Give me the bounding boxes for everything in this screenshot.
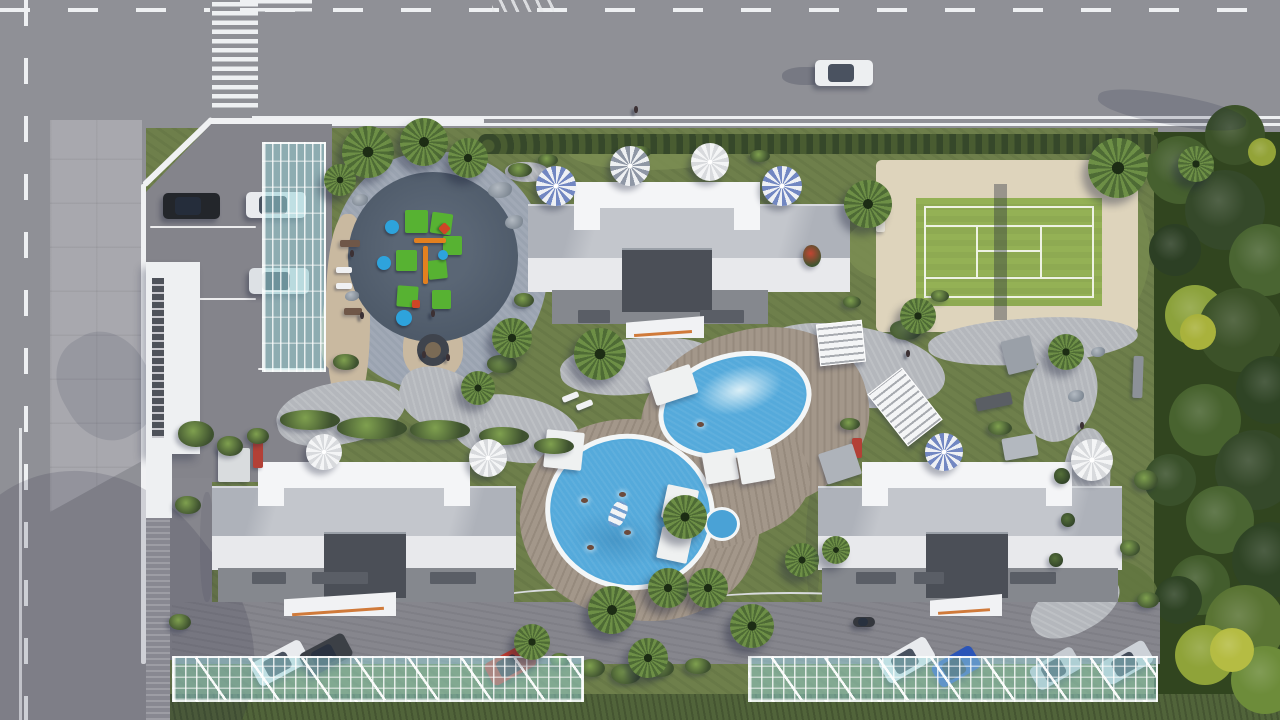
tree-canopy: [1149, 224, 1201, 276]
swimmer: [619, 492, 626, 497]
palm-tree: [574, 328, 626, 380]
sun-cabana-pad: [701, 448, 739, 484]
building-a-parapet-wing: [574, 182, 600, 230]
building-a-entrance-canopy: [578, 310, 610, 323]
playground-equipment: [405, 210, 428, 233]
person: [422, 351, 426, 358]
shrub: [169, 614, 191, 630]
shrub: [514, 293, 534, 307]
building-b-entrance-canopy: [312, 572, 368, 584]
shrub: [685, 658, 711, 674]
building-a-parapet-wing: [734, 182, 760, 230]
tennis-singles-line: [924, 277, 1094, 279]
palm-tree: [1178, 146, 1214, 182]
person: [360, 312, 364, 319]
palm-tree: [900, 298, 936, 334]
tennis-net-shadow: [994, 184, 1007, 320]
swimmer: [581, 498, 588, 503]
shrub: [1120, 540, 1140, 556]
slatted-pergola: [816, 320, 866, 367]
playground-equipment: [427, 259, 448, 280]
sun-cabana-pad: [737, 448, 776, 484]
sun-lounger: [336, 283, 352, 289]
sun-lounger: [336, 267, 352, 273]
shrub: [410, 420, 470, 440]
patio-umbrella: [762, 166, 802, 206]
building-c-entrance-canopy: [856, 572, 896, 584]
tree-canopy: [1180, 314, 1216, 350]
patio-umbrella: [536, 166, 576, 206]
palm-tree: [492, 318, 532, 358]
road-dash-line-top-east: [265, 8, 1280, 12]
playground-equipment: [396, 310, 412, 326]
building-b-entrance-canopy: [252, 572, 286, 584]
swimmer: [697, 422, 704, 427]
palm-tree: [785, 543, 819, 577]
sidewalk: [50, 120, 142, 512]
street-parking-canopy-east: [748, 656, 1158, 702]
playground-equipment: [396, 250, 417, 271]
car: [853, 617, 875, 627]
building-c-entrance-canopy: [1010, 572, 1056, 584]
palm-tree: [588, 586, 636, 634]
building-a-core: [622, 248, 712, 312]
tree-canopy: [1154, 576, 1202, 624]
building-b-core: [324, 532, 406, 598]
playground-equipment: [414, 238, 446, 243]
palm-tree: [663, 495, 707, 539]
shrub: [508, 163, 532, 177]
swimmer: [624, 530, 631, 535]
patio-umbrella: [610, 146, 650, 186]
palm-tree: [688, 568, 728, 608]
fire-pit: [417, 334, 449, 366]
patio-umbrella: [1071, 439, 1113, 481]
building-b-entrance-canopy: [430, 572, 476, 584]
playground-equipment: [385, 220, 399, 234]
building-b-parapet-wing: [258, 462, 284, 506]
person: [906, 350, 910, 357]
shrub: [333, 354, 359, 370]
building-c-parapet: [862, 462, 1072, 488]
car-windshield: [828, 64, 855, 83]
crosswalk-north-stub: [240, 0, 312, 15]
road-chevron-marks: [492, 0, 554, 12]
bench: [253, 440, 263, 468]
shrub: [931, 290, 949, 302]
road-dash-line-top-west: [0, 8, 210, 12]
playground-equipment: [423, 246, 428, 284]
shrub: [247, 428, 269, 444]
shrub: [280, 410, 340, 430]
palm-tree: [1088, 138, 1148, 198]
car-windshield: [175, 197, 201, 216]
shrub: [337, 417, 407, 439]
building-c-entrance-canopy: [914, 572, 944, 584]
building-a-entrance-canopy: [700, 310, 744, 323]
patio-umbrella: [691, 143, 729, 181]
tree-canopy: [1248, 138, 1276, 166]
bench: [340, 240, 360, 247]
palm-tree: [448, 138, 488, 178]
palm-tree: [514, 624, 550, 660]
parking-stall-line: [150, 226, 256, 229]
site-plan-render: [0, 0, 1280, 720]
shrub: [538, 154, 558, 166]
palm-tree: [648, 568, 688, 608]
car-windshield: [858, 618, 868, 625]
building-a-parapet: [574, 182, 760, 208]
shrub: [1137, 592, 1159, 608]
shrub: [803, 245, 821, 267]
shrub: [988, 421, 1012, 435]
shrub: [843, 296, 861, 308]
patio-umbrella: [469, 439, 507, 477]
car: [815, 60, 873, 86]
kids-pool: [704, 507, 740, 541]
shrub: [1054, 468, 1070, 484]
building-c-core: [926, 532, 1008, 598]
shrub: [217, 436, 243, 456]
palm-tree: [324, 164, 356, 196]
palm-tree: [1048, 334, 1084, 370]
site-wall-top: [208, 118, 484, 124]
tennis-singles-line: [924, 225, 1094, 227]
shrub: [750, 150, 770, 162]
shrub: [1134, 470, 1158, 490]
swimmer: [587, 545, 594, 550]
shrub: [178, 421, 214, 447]
person: [350, 250, 354, 257]
crosswalk: [212, 2, 258, 110]
playground-equipment: [432, 290, 451, 309]
bench: [1132, 356, 1143, 398]
person: [1080, 422, 1084, 429]
shrub: [175, 496, 201, 514]
building-c-parapet-wing: [862, 462, 888, 506]
playground-equipment: [438, 250, 448, 260]
gatehouse-annex: [146, 452, 172, 518]
person: [634, 106, 638, 113]
palm-tree: [822, 536, 850, 564]
shrub: [1061, 513, 1075, 527]
shrub: [1049, 553, 1063, 567]
building-b-parapet: [258, 462, 470, 488]
tennis-service-line: [976, 225, 978, 279]
shrub: [840, 418, 860, 430]
gatehouse-stairs: [152, 278, 164, 438]
perimeter-hedge: [478, 134, 1158, 154]
person: [446, 354, 450, 361]
street-parking-canopy-west: [172, 656, 584, 702]
palm-tree: [461, 371, 495, 405]
person: [431, 310, 435, 317]
building-b-parapet-wing: [444, 462, 470, 506]
tree-canopy: [1210, 628, 1254, 672]
palm-tree: [844, 180, 892, 228]
tennis-center-line: [978, 250, 1040, 252]
playground-equipment: [412, 300, 420, 308]
palm-tree: [628, 638, 668, 678]
car: [163, 193, 220, 219]
playground-equipment: [377, 256, 391, 270]
patio-umbrella: [925, 433, 963, 471]
tennis-service-line: [1040, 225, 1042, 279]
shrub: [534, 438, 574, 454]
entrance-carport-glass-canopy: [262, 142, 326, 372]
palm-tree: [730, 604, 774, 648]
tennis-baseline: [924, 206, 1094, 298]
patio-umbrella: [306, 434, 342, 470]
palm-tree: [400, 118, 448, 166]
